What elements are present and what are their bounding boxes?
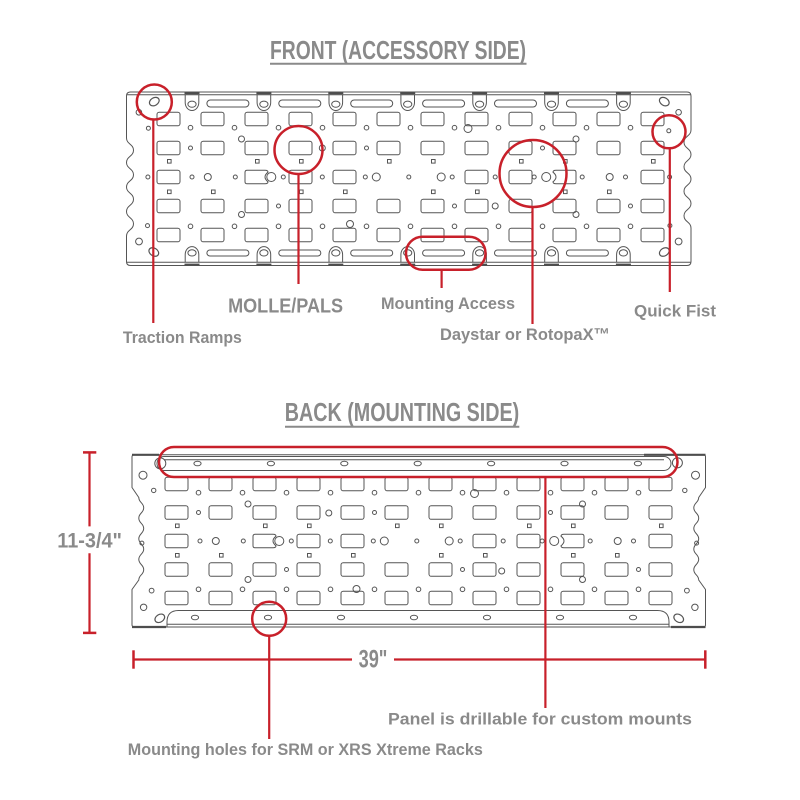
svg-text:MOLLE/PALS: MOLLE/PALS (228, 296, 343, 318)
svg-text:Mounting holes for SRM or XRS: Mounting holes for SRM or XRS Xtreme Rac… (128, 740, 483, 759)
svg-text:39": 39" (359, 645, 388, 673)
svg-text:Mounting Access: Mounting Access (381, 294, 515, 313)
svg-text:Quick Fist: Quick Fist (634, 301, 716, 320)
svg-text:Daystar or RotopaX™: Daystar or RotopaX™ (440, 325, 610, 344)
svg-text:Traction Ramps: Traction Ramps (123, 328, 242, 347)
svg-text:11-3/4": 11-3/4" (57, 529, 122, 552)
svg-text:FRONT (ACCESSORY SIDE): FRONT (ACCESSORY SIDE) (270, 35, 526, 65)
svg-text:BACK (MOUNTING SIDE): BACK (MOUNTING SIDE) (285, 397, 520, 427)
svg-text:Panel is drillable for custom: Panel is drillable for custom mounts (388, 709, 692, 728)
